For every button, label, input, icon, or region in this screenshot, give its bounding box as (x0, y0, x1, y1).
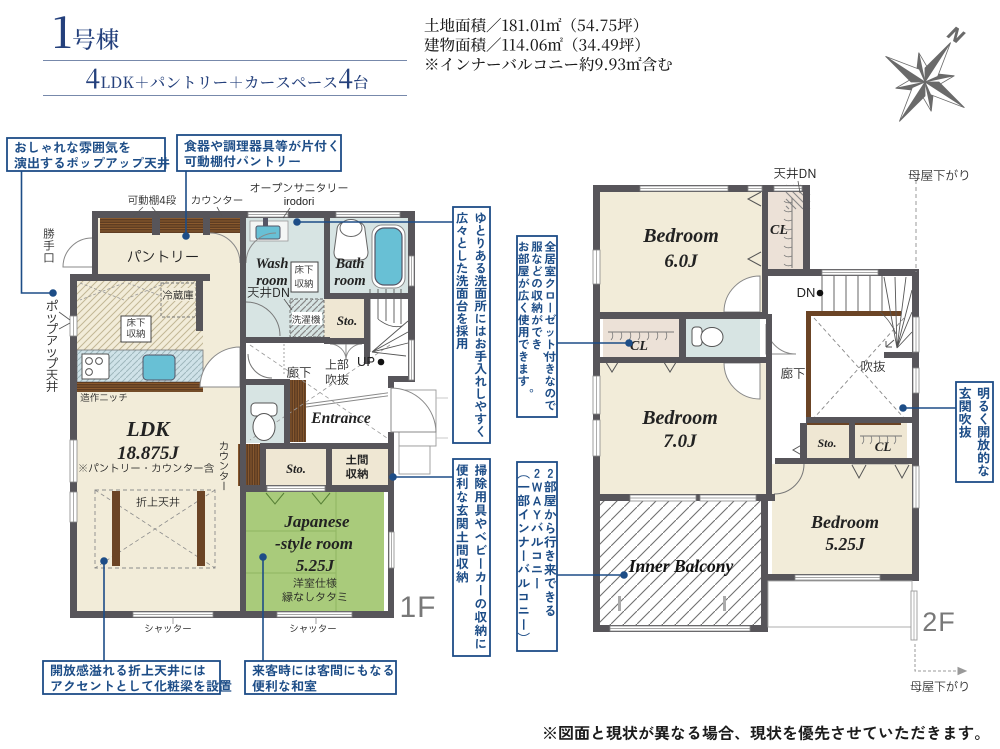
svg-text:Bath: Bath (334, 256, 364, 272)
svg-text:5.25J: 5.25J (825, 534, 866, 554)
svg-text:DN: DN (797, 285, 816, 300)
svg-text:LDK: LDK (126, 417, 172, 441)
svg-text:Japanese: Japanese (283, 512, 350, 531)
svg-text:1F: 1F (399, 591, 436, 624)
svg-text:5.25J: 5.25J (296, 556, 335, 575)
svg-text:Bedroom: Bedroom (641, 407, 718, 429)
svg-text:2F: 2F (922, 607, 956, 637)
svg-text:6.0J: 6.0J (664, 251, 698, 272)
svg-text:7.0J: 7.0J (663, 431, 697, 452)
svg-text:room: room (334, 273, 365, 289)
svg-text:room: room (256, 273, 287, 289)
svg-text:Bedroom: Bedroom (810, 512, 879, 532)
svg-text:N: N (944, 23, 968, 49)
svg-text:Entrance: Entrance (310, 410, 371, 427)
svg-text:Wash: Wash (256, 256, 289, 272)
svg-text:-style room: -style room (275, 534, 353, 553)
svg-text:Bedroom: Bedroom (642, 225, 719, 247)
svg-text:CL: CL (630, 339, 648, 354)
svg-text:irodori: irodori (284, 196, 315, 208)
svg-text:UP: UP (357, 354, 375, 369)
svg-text:Sto.: Sto. (286, 462, 306, 476)
svg-text:18.875J: 18.875J (117, 443, 179, 464)
svg-text:Inner Balcony: Inner Balcony (628, 556, 734, 576)
svg-text:Sto.: Sto. (337, 313, 358, 328)
svg-text:CL: CL (875, 439, 892, 454)
svg-text:CL: CL (770, 223, 788, 238)
svg-text:Sto.: Sto. (817, 436, 836, 450)
